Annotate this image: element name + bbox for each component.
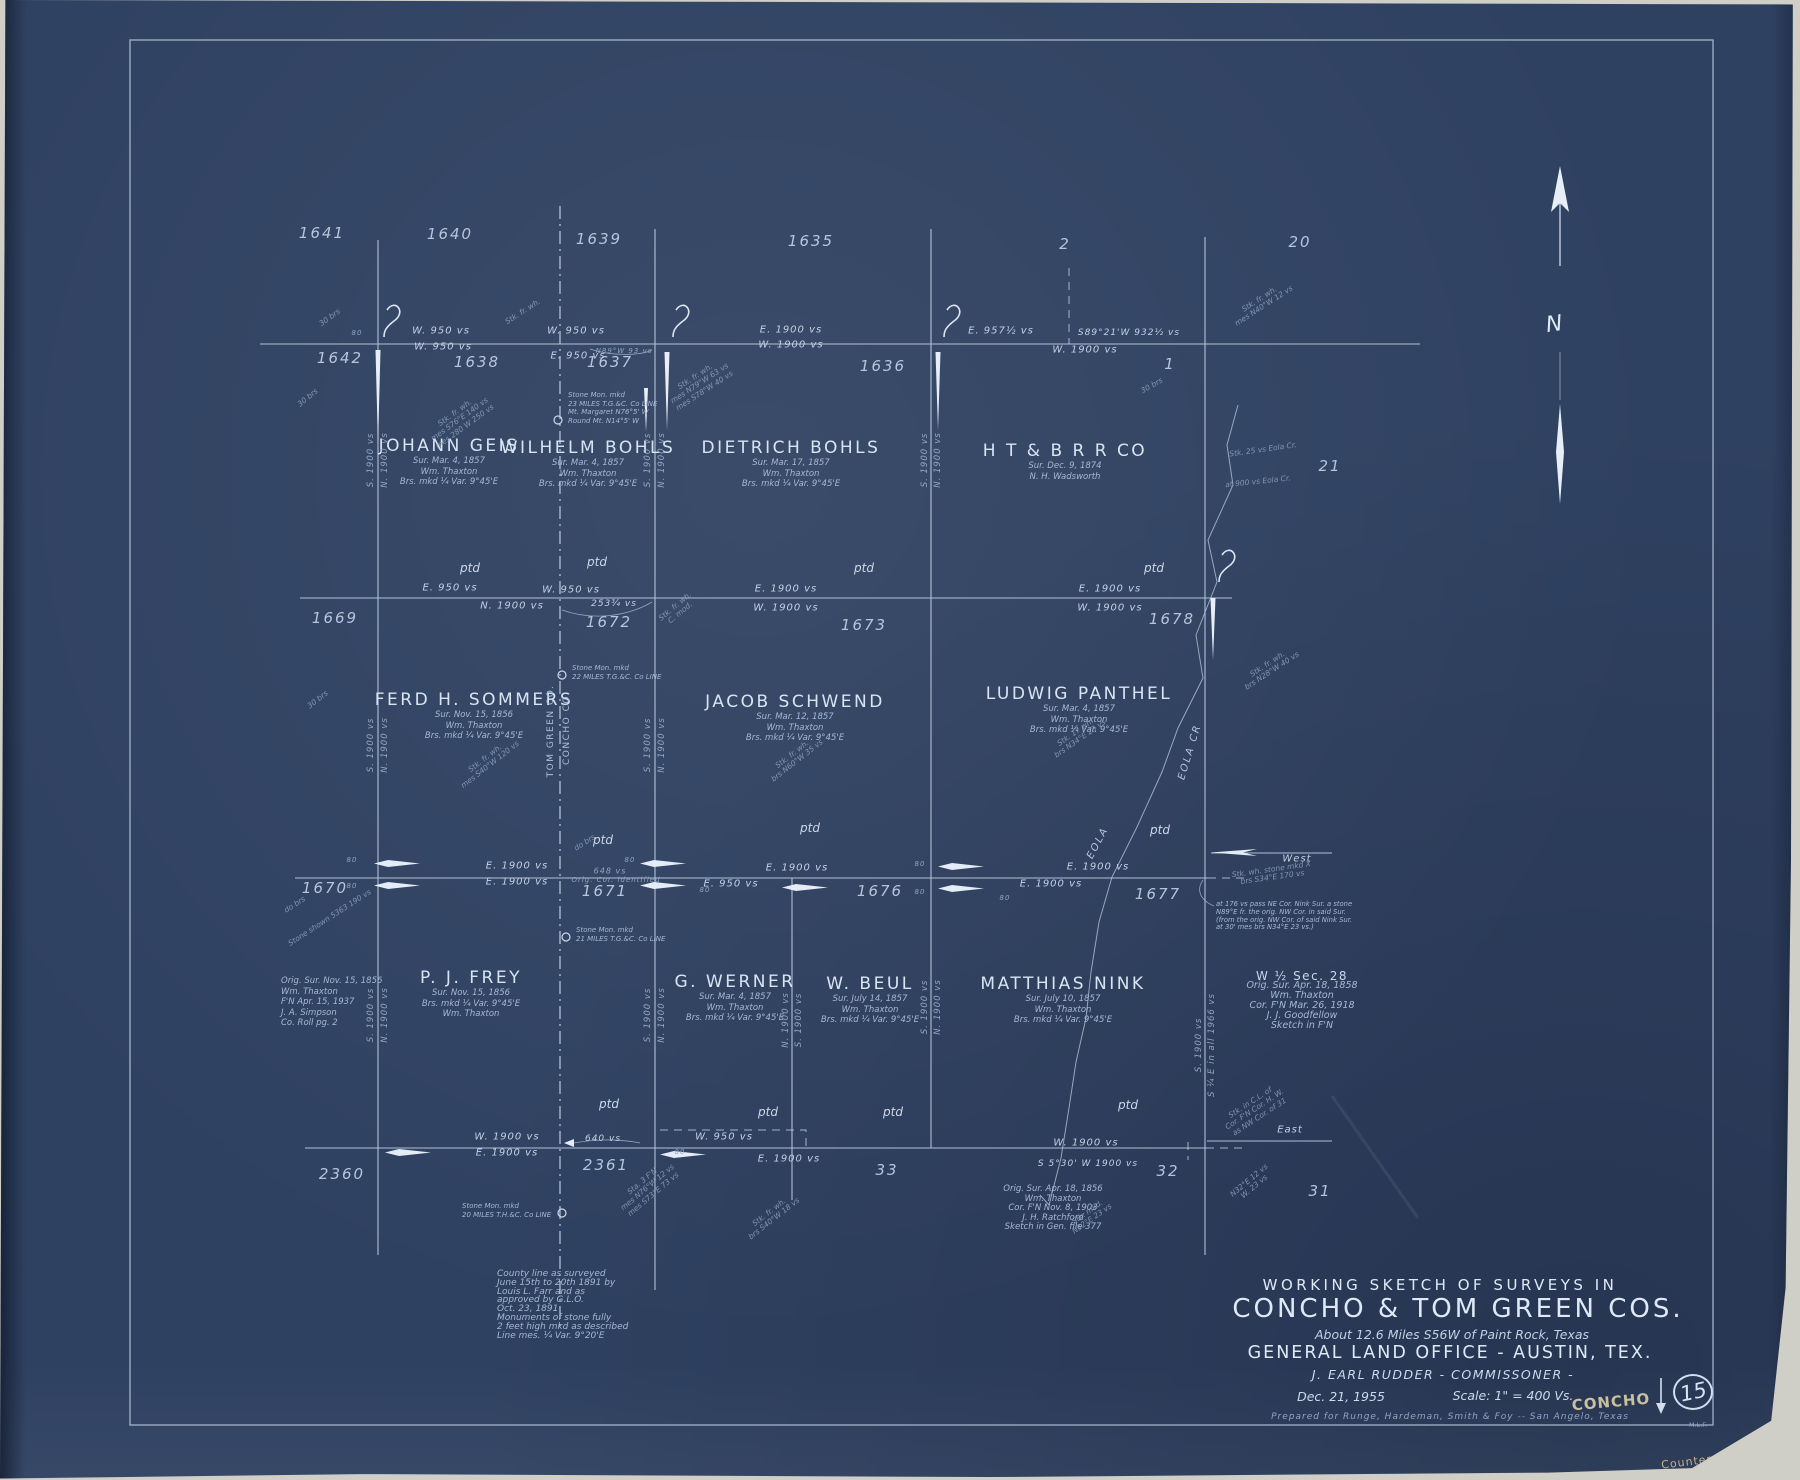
line-label: 80: [625, 856, 636, 864]
section-number: 1670: [302, 879, 348, 897]
survey-detail: Brs. mkd ¼ Var. 9°45'E: [821, 1015, 919, 1026]
bearing-note: Stk. fr. wh.mes N40°W 12 vs: [1229, 278, 1295, 329]
line-label: W. 1900 vs: [1053, 1138, 1118, 1149]
survey-detail: Sur. Dec. 9, 1874: [983, 461, 1147, 472]
line-label: W. 950 vs: [414, 342, 472, 353]
vara-label: S. 1900 vs: [643, 718, 653, 773]
patented-label: ptd: [460, 561, 480, 575]
line-label: E. 1900 vs: [758, 1154, 820, 1165]
note-line: 22 MILES T.G.&C. Co LINE: [572, 673, 661, 682]
bearing-note-line: 30 brs: [296, 387, 320, 409]
line-label: 80: [915, 860, 926, 868]
survey-name: DIETRICH BOHLS: [702, 438, 881, 458]
note-line: Round Mt. N14°5' W: [568, 417, 657, 426]
blueprint-paper: 1641164016391635220164216381637163612116…: [0, 0, 1800, 1480]
county-name-label: TOM GREEN CO.: [546, 685, 556, 778]
title-line-2: CONCHO & TOM GREEN COS.: [1232, 1294, 1683, 1324]
line-label: 80: [352, 329, 363, 337]
survey-detail: Wm. Thaxton: [375, 721, 573, 732]
note-block: W ½ Sec. 28Orig. Sur. Apr. 18, 1858Wm. T…: [1246, 971, 1357, 1031]
bearing-note-line: 30 brs: [318, 308, 342, 329]
line-label: E. 1900 vs: [766, 863, 828, 874]
line-label: E. 950 vs: [703, 879, 758, 890]
vara-label: N. 1900 vs: [380, 717, 390, 773]
note-line: 23 MILES T.G.&C. Co LINE: [568, 400, 657, 409]
title-subtitle: About 12.6 Miles S56W of Paint Rock, Tex…: [1315, 1327, 1589, 1342]
section-number: 1678: [1149, 610, 1195, 628]
section-number: 2360: [319, 1165, 365, 1183]
bearing-note-line: at 900 vs Eola Cr.: [1225, 474, 1291, 489]
creek-label: EOLA: [1085, 825, 1111, 861]
survey-name: FERD H. SOMMERS: [375, 690, 573, 710]
line-label: 80: [675, 1148, 686, 1156]
section-number: 33: [875, 1161, 898, 1179]
line-label: N. 1900 vs: [480, 601, 544, 612]
section-number: 1: [1164, 355, 1176, 373]
section-number: 1635: [788, 232, 834, 250]
survey-name: G. WERNER: [674, 972, 795, 992]
bearing-note: 30 brs: [1140, 376, 1165, 395]
note-block: Orig. Sur. Nov. 15, 1856Wm. ThaxtonF'N A…: [281, 976, 382, 1029]
line-label: W. 950 vs: [412, 326, 470, 337]
patented-label: ptd: [587, 555, 607, 569]
section-number: 1672: [586, 613, 632, 631]
note-line: Co. Roll pg. 2: [281, 1018, 382, 1029]
survey-detail: Sur. Mar. 4, 1857: [986, 704, 1172, 715]
patented-label: ptd: [854, 561, 874, 575]
vara-label: N. 1900 vs: [781, 992, 791, 1048]
section-number: 2: [1059, 235, 1071, 253]
bearing-note: Stk. fr. wh.mes S40°W 120 vs: [455, 733, 521, 790]
section-number: 21: [1318, 457, 1341, 475]
note-line: Orig. Sur. Nov. 15, 1856: [281, 976, 382, 987]
vara-label: S. 1900 vs: [366, 433, 376, 488]
sheet-number-circle: 15: [1673, 1374, 1713, 1410]
line-label: 80: [700, 886, 711, 894]
survey-detail: Wm. Thaxton: [705, 723, 885, 734]
survey-detail: Brs. mkd ¼ Var. 9°45'E: [702, 479, 881, 490]
note-line: Sketch in F'N: [1246, 1021, 1357, 1031]
note-line: Wm. Thaxton: [281, 987, 382, 998]
line-label: E. 1900 vs: [1020, 879, 1082, 890]
vara-label: N. 1900 vs: [933, 432, 943, 488]
line-label: 640 vs: [585, 1134, 621, 1144]
line-label: W. 1900 vs: [1052, 345, 1117, 356]
section-number: 1636: [860, 357, 906, 375]
bearing-note: Stk. fr. wh.C. mod.: [657, 591, 698, 630]
vara-label: S. 1900 vs: [643, 433, 653, 488]
note-line: 20 MILES T.H.&C. Co LINE: [462, 1211, 551, 1220]
line-label: W. 1900 vs: [753, 603, 818, 614]
section-number: 1673: [841, 616, 887, 634]
monument-note: Stone Mon. mkd21 MILES T.G.&C. Co LINE: [576, 926, 665, 943]
survey-label: MATTHIAS NINKSur. July 10, 1857Wm. Thaxt…: [980, 974, 1145, 1026]
survey-detail: Brs. mkd ¼ Var. 9°45'E: [375, 731, 573, 742]
note-line: J. A. Simpson: [281, 1008, 382, 1019]
section-number: 1638: [454, 353, 500, 371]
bearing-note: Stk. wh. stone mkd Xbrs S34°E 170 vs: [1231, 860, 1312, 888]
patented-label: ptd: [1144, 561, 1164, 575]
vara-label: S ¼ E in all 1966 vs: [1207, 993, 1217, 1097]
survey-detail: Sur. Mar. 4, 1857: [674, 992, 795, 1003]
section-number: 1642: [317, 349, 363, 367]
line-label: E. 1900 vs: [486, 861, 548, 872]
line-label: E. 1900 vs: [1079, 584, 1141, 595]
line-label: S89°21'W 932½ vs: [1078, 328, 1180, 338]
line-label: 253¾ vs: [591, 599, 637, 609]
survey-detail: Sur. Mar. 4, 1857: [379, 456, 520, 467]
survey-label: DIETRICH BOHLSSur. Mar. 17, 1857Wm. Thax…: [702, 438, 881, 490]
section-number: 20: [1288, 233, 1311, 251]
monument-note: Stone Mon. mkd20 MILES T.H.&C. Co LINE: [462, 1202, 551, 1219]
vara-label: S. 1900 vs: [366, 718, 376, 773]
patented-label: ptd: [758, 1105, 778, 1119]
section-number: 1641: [299, 224, 345, 242]
survey-detail: Wm. Thaxton: [420, 1009, 522, 1020]
bearing-note: Stk. fr. wh.mes N79°W 63 vsmes S78°W 40 …: [665, 355, 735, 413]
patented-label: ptd: [1118, 1098, 1138, 1112]
survey-label: P. J. FREYSur. Nov. 15, 1856Brs. mkd ¼ V…: [420, 968, 522, 1020]
vara-label: N. 1900 vs: [657, 717, 667, 773]
line-label: 80: [347, 882, 358, 890]
note-line: Line mes. ¼ Var. 9°20'E: [497, 1332, 628, 1341]
bearing-note: at 900 vs Eola Cr.: [1225, 474, 1291, 489]
title-date: Dec. 21, 1955: [1297, 1389, 1385, 1404]
line-label: 80: [347, 856, 358, 864]
survey-detail: Brs. mkd ¼ Var. 9°45'E: [379, 477, 520, 488]
survey-name: H T & B R R CO: [983, 441, 1147, 461]
survey-detail: Brs. mkd ¼ Var. 9°45'E: [674, 1013, 795, 1024]
vara-label: N. 1900 vs: [657, 987, 667, 1043]
bearing-note-line: 30 brs: [1140, 376, 1165, 395]
survey-detail: Wm. Thaxton: [980, 1005, 1145, 1016]
survey-detail: Sur. Mar. 17, 1857: [702, 458, 881, 469]
vara-label: S. 1900 vs: [1194, 1018, 1204, 1073]
section-number: 1671: [582, 882, 628, 900]
bearing-note: do brs: [283, 895, 307, 915]
note-block: at 176 vs pass NE Cor. Nink Sur. a stone…: [1216, 901, 1352, 932]
title-line-1: WORKING SKETCH OF SURVEYS IN: [1263, 1276, 1618, 1294]
section-number: 1677: [1135, 885, 1181, 903]
line-label: E. 1900 vs: [486, 877, 548, 888]
vara-label: S. 1900 vs: [920, 980, 930, 1035]
note-block: County line as surveyedJune 15th to 20th…: [497, 1270, 628, 1340]
section-number: 1640: [427, 225, 473, 243]
survey-label: G. WERNERSur. Mar. 4, 1857Wm. ThaxtonBrs…: [674, 972, 795, 1024]
line-label: W. 950 vs: [695, 1132, 753, 1143]
patented-label: ptd: [883, 1105, 903, 1119]
survey-name: MATTHIAS NINK: [980, 974, 1145, 994]
bearing-note-line: do brs: [283, 895, 307, 915]
survey-detail: Wm. Thaxton: [821, 1005, 919, 1016]
line-label: 80: [1000, 894, 1011, 902]
line-label: 80: [915, 888, 926, 896]
survey-label: W. BEULSur. July 14, 1857Wm. ThaxtonBrs.…: [821, 974, 919, 1026]
line-label: W. 1900 vs: [758, 340, 823, 351]
vara-label: S. 1900 vs: [794, 993, 804, 1048]
note-line: Stone Mon. mkd: [572, 664, 661, 673]
note-line: Stone Mon. mkd: [568, 391, 657, 400]
line-label: East: [1277, 1125, 1303, 1136]
sheet-number: 15: [1677, 1377, 1708, 1406]
bearing-note-line: Stk. 25 vs Eola Cr.: [1229, 441, 1297, 459]
survey-detail: Sur. Nov. 15, 1856: [420, 988, 522, 999]
survey-detail: Brs. mkd ¼ Var. 9°45'E: [980, 1015, 1145, 1026]
note-line: Stone Mon. mkd: [462, 1202, 551, 1211]
note-line: F'N Apr. 15, 1937: [281, 997, 382, 1008]
bearing-note: Stk. fr. wh.: [504, 298, 542, 327]
line-label: E. 1900 vs: [755, 584, 817, 595]
line-label: S 5°30' W 1900 vs: [1038, 1159, 1138, 1169]
line-label: E. 950 vs: [422, 583, 477, 594]
line-label: W. 1900 vs: [1077, 603, 1142, 614]
monument-note: Stone Mon. mkd23 MILES T.G.&C. Co LINEMt…: [568, 391, 657, 425]
bearing-note: 30 brs: [318, 308, 342, 329]
section-number: 2361: [583, 1156, 629, 1174]
section-number: 1676: [857, 882, 903, 900]
vara-label: S. 1900 vs: [920, 433, 930, 488]
survey-name: P. J. FREY: [420, 968, 522, 988]
north-letter: N: [1544, 311, 1564, 338]
survey-name: W. BEUL: [821, 974, 919, 994]
line-label: E. 1900 vs: [476, 1148, 538, 1159]
line-label: E. 1900 vs: [1067, 862, 1129, 873]
blueprint-scan: 1641164016391635220164216381637163612116…: [0, 0, 1800, 1480]
patented-label: ptd: [1150, 823, 1170, 837]
survey-detail: Brs. mkd ¼ Var. 9°45'E: [420, 999, 522, 1010]
creek-label: EOLA CR: [1176, 723, 1203, 781]
draftsman-initials: M.L.F.: [1689, 1421, 1707, 1429]
note-line: Stone Mon. mkd: [576, 926, 665, 935]
line-label: Orig. Cor. identified: [571, 876, 660, 884]
bearing-note: 30 brs: [306, 689, 330, 710]
vara-label: S. 1900 vs: [643, 988, 653, 1043]
survey-detail: Sur. July 14, 1857: [821, 994, 919, 1005]
survey-label: H T & B R R COSur. Dec. 9, 1874N. H. Wad…: [983, 441, 1147, 482]
bearing-note: 30 brs: [296, 387, 320, 409]
vara-label: N. 1900 vs: [933, 979, 943, 1035]
bearing-note-line: Stk. fr. wh.: [504, 298, 542, 327]
survey-detail: Wm. Thaxton: [702, 469, 881, 480]
county-name-label: CONCHO CO.: [562, 691, 572, 765]
survey-label: JACOB SCHWENDSur. Mar. 12, 1857Wm. Thaxt…: [705, 692, 885, 744]
line-label: W. 950 vs: [542, 585, 600, 596]
survey-label: JOHANN GEISSur. Mar. 4, 1857Wm. ThaxtonB…: [379, 436, 520, 488]
monument-note: Stone Mon. mkd22 MILES T.G.&C. Co LINE: [572, 664, 661, 681]
bearing-note-line: 30 brs: [306, 689, 330, 710]
line-label: W. 1900 vs: [474, 1132, 539, 1143]
section-number: 31: [1308, 1182, 1331, 1200]
bearing-note: Stk. 25 vs Eola Cr.: [1229, 441, 1297, 459]
bearing-note: Stk. fr. wh.brs S40°W 18 vs: [742, 1190, 801, 1242]
survey-detail: Sur. Nov. 15, 1856: [375, 710, 573, 721]
map-labels: 1641164016391635220164216381637163612116…: [0, 0, 1800, 1480]
note-line: at 30' mes brs N34°E 23 vs.): [1216, 924, 1352, 932]
title-office: GENERAL LAND OFFICE - AUSTIN, TEX.: [1248, 1343, 1653, 1363]
vara-label: N. 1900 vs: [657, 432, 667, 488]
title-commissioner: J. EARL RUDDER - COMMISSONER -: [1312, 1367, 1574, 1382]
survey-name: LUDWIG PANTHEL: [986, 684, 1172, 704]
survey-label: FERD H. SOMMERSSur. Nov. 15, 1856Wm. Tha…: [375, 690, 573, 742]
section-number: 32: [1156, 1162, 1179, 1180]
patented-label: ptd: [800, 821, 820, 835]
survey-detail: Sur. July 10, 1857: [980, 994, 1145, 1005]
section-number: 1669: [312, 609, 358, 627]
survey-detail: Wm. Thaxton: [379, 467, 520, 478]
survey-detail: Brs. mkd ¼ Var. 9°45'E: [705, 733, 885, 744]
note-line: 21 MILES T.G.&C. Co LINE: [576, 935, 665, 944]
line-label: N89°W 93 vs: [596, 347, 653, 355]
note-line: Mt. Margaret N76°5' W: [568, 408, 657, 417]
patented-label: ptd: [599, 1097, 619, 1111]
survey-name: JACOB SCHWEND: [705, 692, 885, 712]
survey-detail: Sur. Mar. 12, 1857: [705, 712, 885, 723]
section-number: 1639: [576, 230, 622, 248]
survey-detail: Wm. Thaxton: [674, 1003, 795, 1014]
survey-detail: N. H. Wadsworth: [983, 472, 1147, 483]
bearing-note: Stk. fr. wh.brs N28°W 40 vs: [1239, 644, 1301, 692]
line-label: 648 vs: [594, 867, 627, 876]
line-label: W. 950 vs: [547, 326, 605, 337]
bearing-note: N32°E 12 vsW. 23 vs: [1229, 1163, 1275, 1206]
vara-label: N. 1900 vs: [380, 432, 390, 488]
line-label: E. 1900 vs: [760, 325, 822, 336]
title-scale: Scale: 1" = 400 Vs.: [1453, 1388, 1574, 1403]
line-label: E. 957½ vs: [968, 326, 1034, 337]
